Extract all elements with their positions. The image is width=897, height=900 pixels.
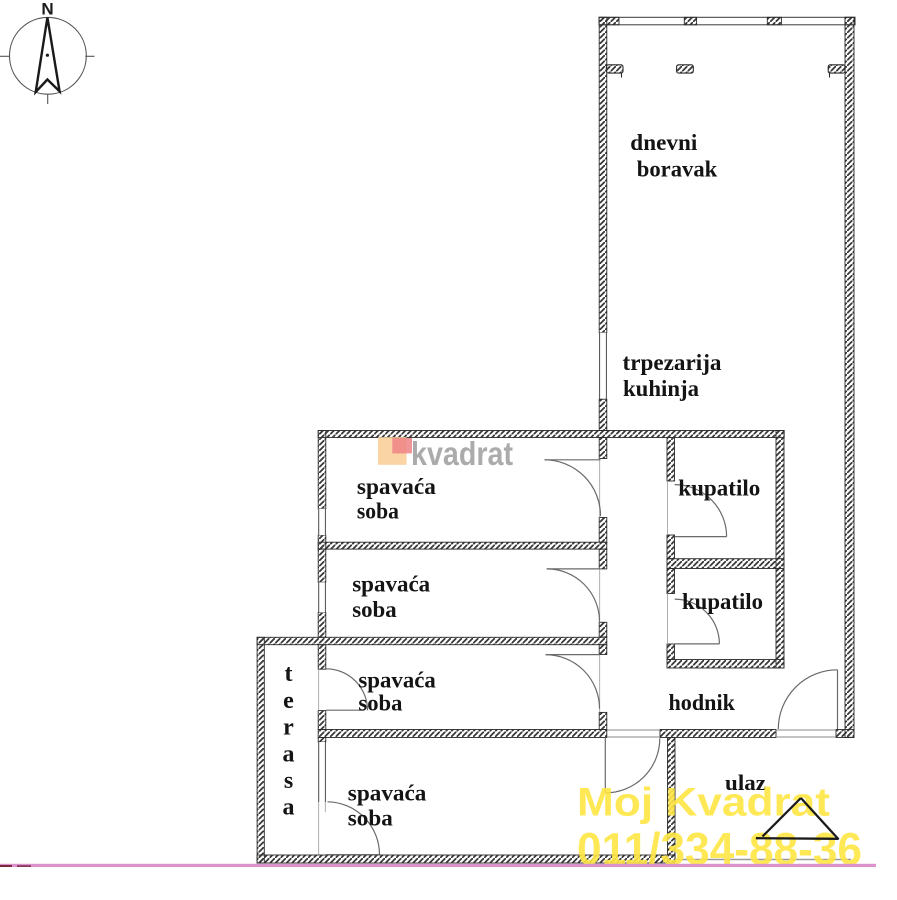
svg-text:soba: soba	[352, 597, 397, 622]
svg-text:kupatilo: kupatilo	[678, 476, 760, 501]
svg-text:a: a	[283, 795, 295, 821]
svg-text:soba: soba	[358, 691, 402, 716]
svg-text:kupatilo: kupatilo	[682, 589, 763, 614]
svg-text:spavaća: spavaća	[358, 668, 436, 693]
svg-text:a: a	[283, 742, 295, 768]
svg-text:hodnik: hodnik	[669, 690, 736, 715]
svg-text:kvadrat: kvadrat	[411, 435, 513, 472]
svg-text:e: e	[283, 688, 294, 714]
svg-text:Moj Kvadrat: Moj Kvadrat	[577, 781, 830, 825]
svg-text:spavaća: spavaća	[352, 572, 430, 597]
svg-text:kuhinja: kuhinja	[623, 376, 699, 401]
svg-text:soba: soba	[348, 806, 393, 831]
svg-text:boravak: boravak	[637, 157, 718, 182]
svg-text:spavaća: spavaća	[348, 781, 427, 806]
svg-text:soba: soba	[357, 499, 399, 524]
svg-text:spavaća: spavaća	[357, 474, 437, 499]
svg-text:s: s	[284, 768, 293, 794]
svg-text:t: t	[285, 661, 293, 687]
svg-text:r: r	[283, 715, 294, 741]
svg-text:dnevni: dnevni	[630, 130, 698, 155]
svg-text:trpezarija: trpezarija	[623, 350, 722, 375]
svg-text:N: N	[41, 0, 53, 19]
